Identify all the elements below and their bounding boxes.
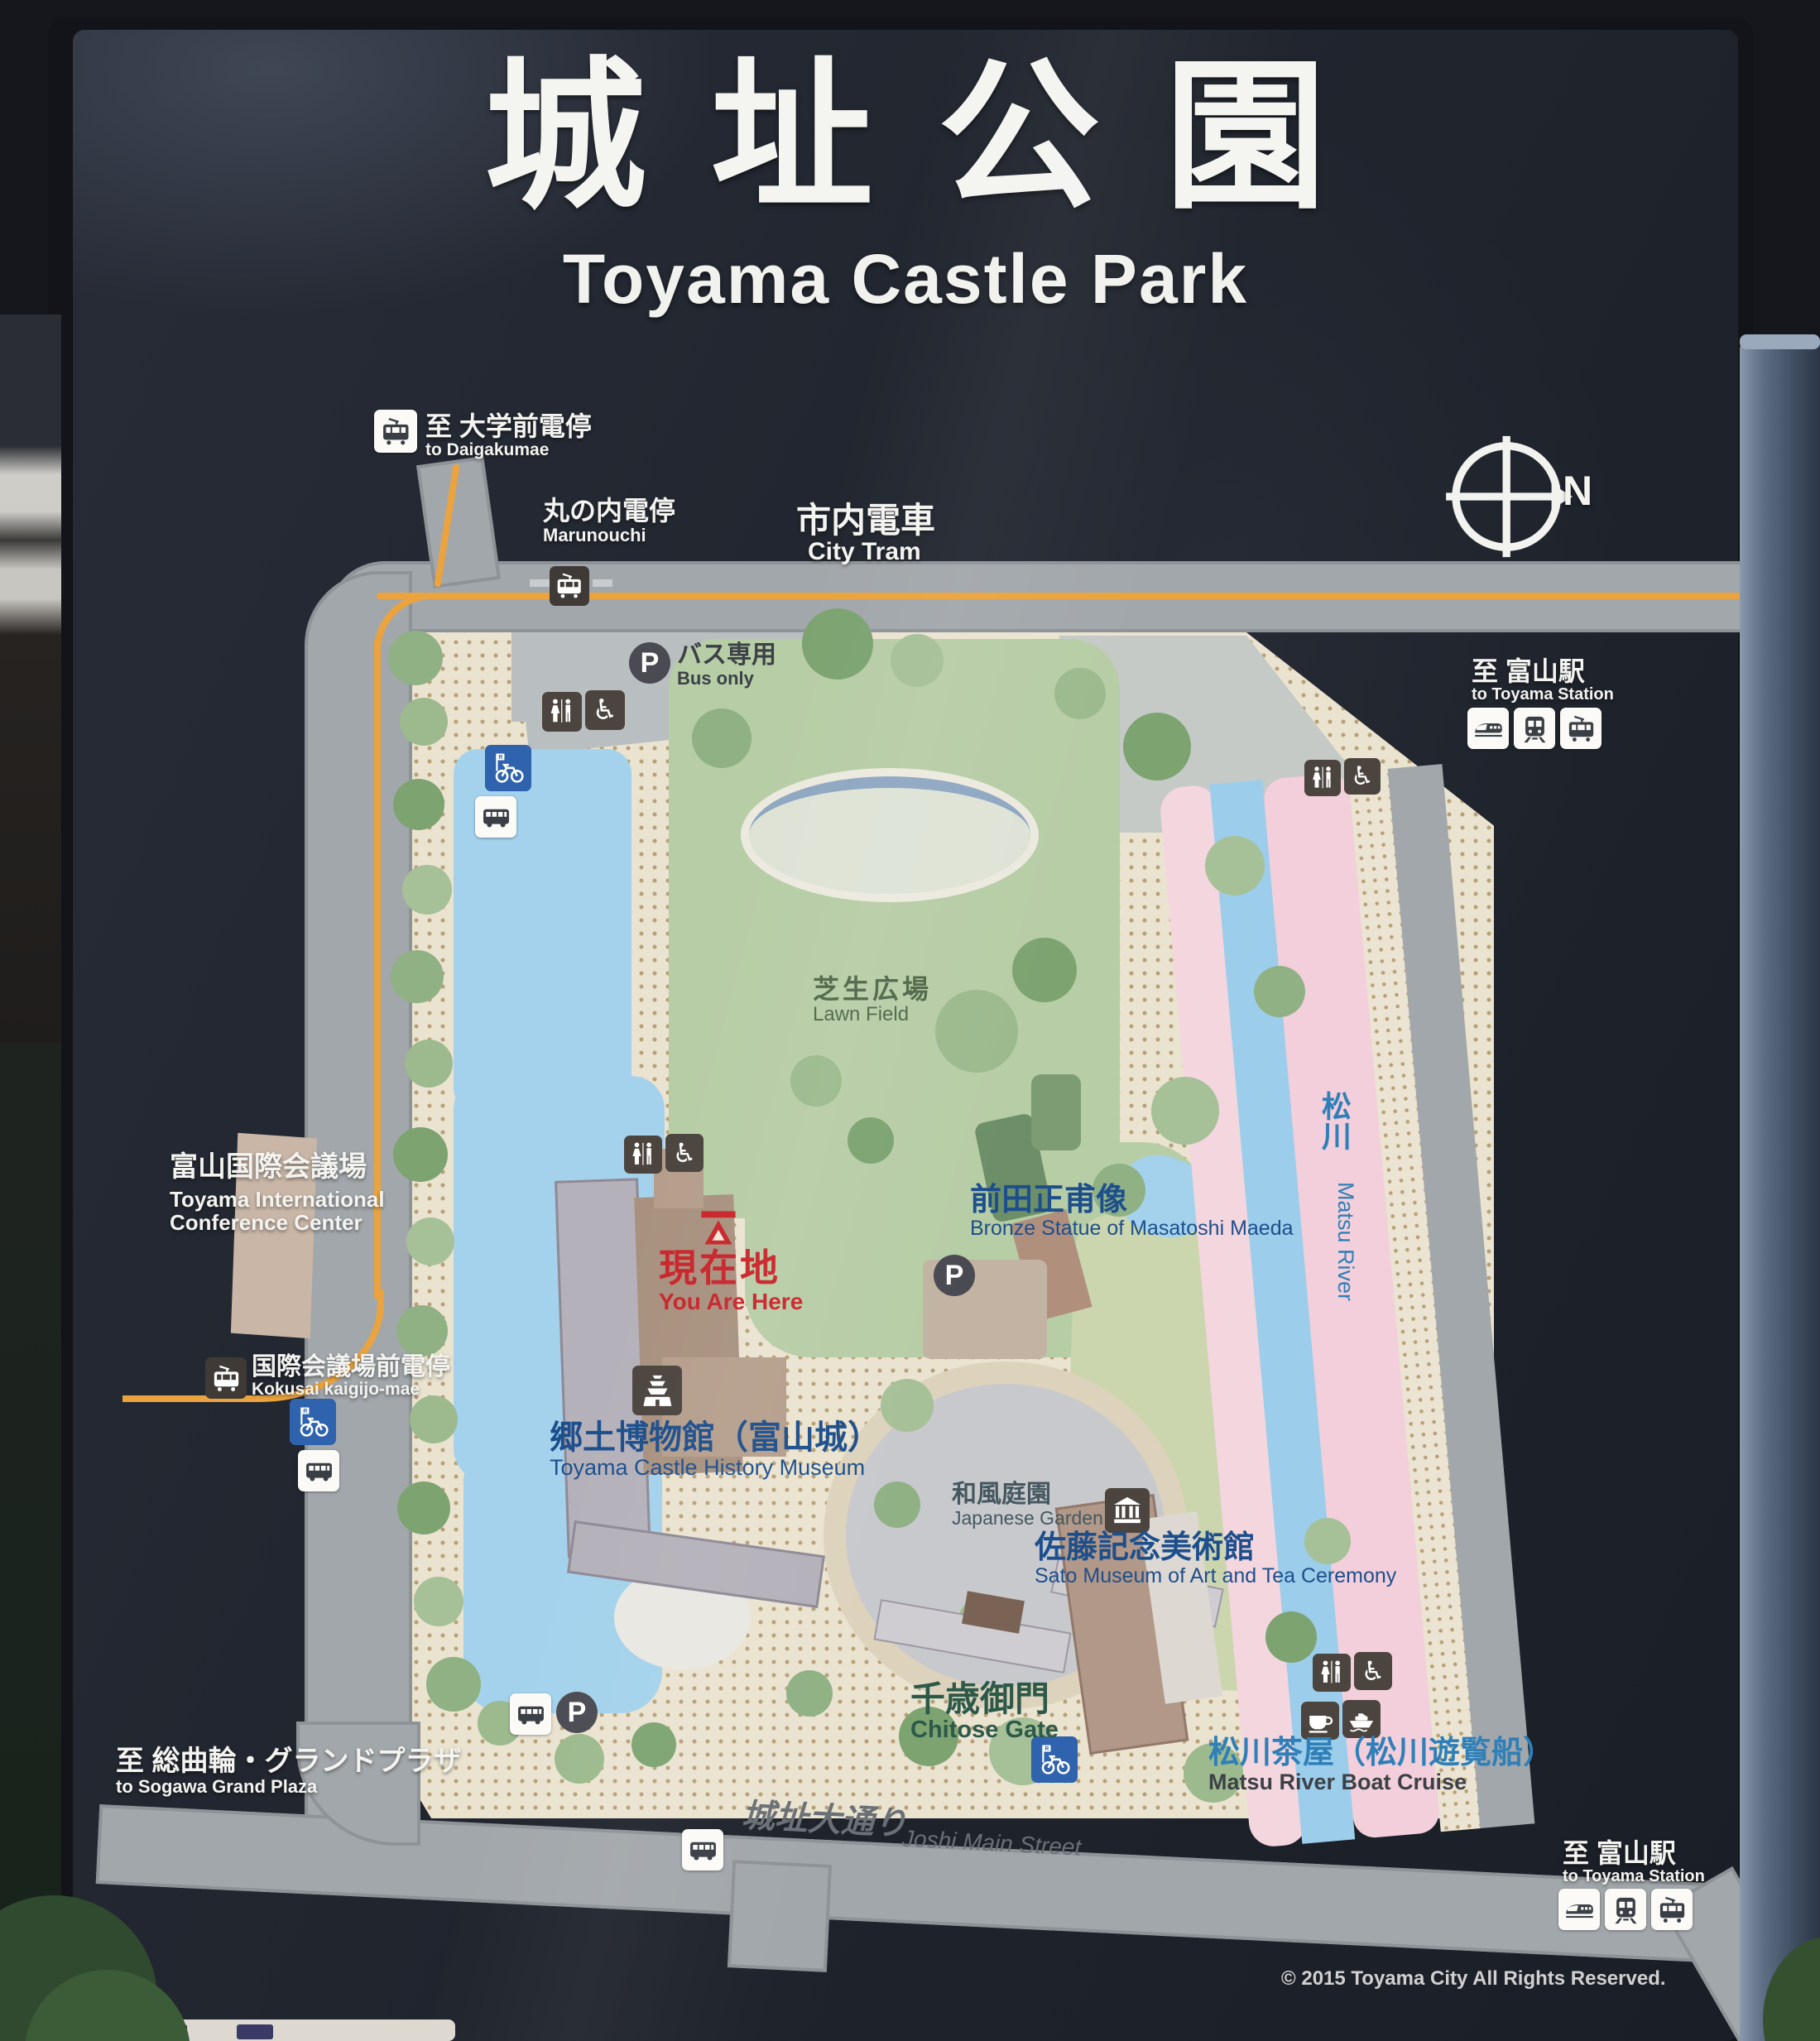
city-tram-jp: 市内電車 xyxy=(796,502,935,539)
bicycle-rental-icon-nw: R xyxy=(485,745,531,791)
label-to-toyama-station-bottom: 至 富山駅 to Toyama Station xyxy=(1563,1839,1705,1885)
label-sogawa: 至 総曲輪・グランドプラザ to Sogawa Grand Plaza xyxy=(116,1746,461,1796)
tree xyxy=(426,1657,481,1712)
tree xyxy=(891,634,944,687)
to-toyama-bottom-en: to Toyama Station xyxy=(1563,1868,1705,1886)
label-city-tram: 市内電車 City Tram xyxy=(796,502,935,566)
svg-text:R: R xyxy=(499,755,503,761)
conference-center-en1: Toyama International xyxy=(170,1188,385,1211)
compass-icon xyxy=(1442,426,1582,567)
lawn-field-en: Lawn Field xyxy=(813,1004,932,1025)
bus-only-jp: バス専用 xyxy=(677,642,776,669)
maeda-statue-en: Bronze Statue of Masatoshi Maeda xyxy=(970,1217,1294,1240)
you-are-here-marker xyxy=(697,1207,740,1248)
tree xyxy=(402,865,452,915)
kokusai-en: Kokusai kaigijo-mae xyxy=(252,1381,450,1400)
castle-icon xyxy=(632,1366,682,1415)
to-toyama-top-en: to Toyama Station xyxy=(1472,686,1614,704)
label-boat-cruise: 松川茶屋（松川遊覧船） Matsu River Boat Cruise xyxy=(1208,1736,1554,1794)
to-daigakumae-jp: 至 大学前電停 xyxy=(425,412,592,441)
label-you-are-here: 現在地 You Are Here xyxy=(659,1248,803,1314)
label-sato-museum: 佐藤記念美術館 Sato Museum of Art and Tea Cerem… xyxy=(1035,1531,1396,1587)
background-building xyxy=(0,315,61,1043)
tree xyxy=(393,1127,448,1182)
boat-cruise-jp: 松川茶屋（松川遊覧船） xyxy=(1208,1736,1554,1770)
svg-text:R: R xyxy=(1045,1746,1049,1752)
train-icon xyxy=(1514,708,1555,749)
conference-center-jp: 富山国際会議場 xyxy=(170,1152,385,1183)
tree xyxy=(848,1117,894,1164)
tree xyxy=(1265,1611,1317,1663)
label-conference-center: 富山国際会議場 Toyama International Conference … xyxy=(170,1152,385,1234)
you-are-here-jp: 現在地 xyxy=(659,1248,803,1289)
wheelchair-icon-castle: ♿ xyxy=(665,1134,704,1172)
tree xyxy=(631,1722,676,1767)
road-south-stub xyxy=(728,1860,832,1972)
sogawa-jp: 至 総曲輪・グランドプラザ xyxy=(116,1746,461,1777)
label-matsu-river-en: Matsu River xyxy=(1333,1182,1357,1301)
tree xyxy=(414,1577,463,1626)
tram-stop-icon-kokusai xyxy=(205,1357,247,1399)
label-to-toyama-station-top: 至 富山駅 to Toyama Station xyxy=(1472,657,1614,704)
city-tram-en: City Tram xyxy=(796,539,935,565)
bus-icon-nw xyxy=(475,796,516,838)
bus-icon-south xyxy=(510,1693,551,1735)
japanese-garden-jp: 和風庭園 xyxy=(952,1482,1103,1508)
wheelchair-icon-ne: ♿ xyxy=(1344,758,1381,795)
parking-icon-bus: P xyxy=(629,642,670,684)
tram-platform-east xyxy=(593,579,612,587)
tree xyxy=(874,1482,920,1528)
tree xyxy=(405,1040,453,1088)
parking-icon-south: P xyxy=(556,1692,598,1733)
label-to-daigakumae: 至 大学前電停 to Daigakumae xyxy=(425,412,592,459)
tree xyxy=(391,950,444,1003)
boat-icon xyxy=(1342,1700,1381,1738)
conference-center-en2: Conference Center xyxy=(170,1211,385,1234)
history-museum-en: Toyama Castle History Museum xyxy=(550,1456,881,1480)
tree xyxy=(388,631,443,685)
marunouchi-jp: 丸の内電停 xyxy=(543,497,675,526)
bus-icon-west xyxy=(298,1450,339,1491)
label-kokusai-kaigijo-mae: 国際会議場前電停 Kokusai kaigijo-mae xyxy=(252,1354,450,1400)
tree xyxy=(397,1482,450,1534)
japanese-garden-en: Japanese Garden xyxy=(952,1508,1103,1529)
label-maeda-statue: 前田正甫像 Bronze Statue of Masatoshi Maeda xyxy=(970,1184,1294,1240)
signpost-pole xyxy=(1740,341,1820,2041)
toilet-icon-se xyxy=(1313,1654,1351,1692)
tree xyxy=(555,1734,604,1784)
label-history-museum: 郷土博物館（富山城） Toyama Castle History Museum xyxy=(550,1420,881,1480)
shinkansen-icon-bottom xyxy=(1558,1889,1600,1930)
photographed-park-sign: 城址公園 Toyama Castle Park N xyxy=(0,0,1820,2041)
tree xyxy=(396,1305,448,1357)
tree xyxy=(790,1055,842,1107)
label-japanese-garden: 和風庭園 Japanese Garden xyxy=(952,1482,1103,1529)
sign-title-english: Toyama Castle Park xyxy=(73,242,1738,317)
tree xyxy=(692,708,752,768)
tree xyxy=(1205,836,1265,896)
copyright-text: © 2015 Toyama City All Rights Reserved. xyxy=(1281,1968,1666,1990)
lower-sign-glyph-2 xyxy=(237,2024,273,2039)
museum-icon xyxy=(1105,1488,1150,1533)
label-marunouchi: 丸の内電停 Marunouchi xyxy=(543,497,675,545)
tree xyxy=(786,1670,833,1717)
tram-icon xyxy=(374,410,417,453)
train-icon-bottom xyxy=(1605,1889,1646,1930)
to-toyama-bottom-jp: 至 富山駅 xyxy=(1563,1839,1705,1868)
label-chitose-gate: 千歳御門 Chitose Gate xyxy=(910,1680,1059,1744)
tram-icon-station-bottom xyxy=(1651,1889,1693,1930)
tram-stop-icon-marunouchi xyxy=(550,566,589,606)
sato-museum-jp: 佐藤記念美術館 xyxy=(1035,1531,1396,1565)
tree xyxy=(1012,938,1077,1002)
chitose-gate-en: Chitose Gate xyxy=(910,1717,1059,1743)
tram-icon-station-top xyxy=(1560,708,1602,749)
tree xyxy=(393,779,444,830)
tree xyxy=(881,1379,934,1432)
boat-cruise-en: Matsu River Boat Cruise xyxy=(1208,1770,1554,1794)
lawn-field-jp: 芝生広場 xyxy=(813,975,932,1004)
label-matsu-river-jp: 松川 xyxy=(1318,1091,1350,1150)
tree xyxy=(1151,1077,1219,1145)
label-bus-only: バス専用 Bus only xyxy=(677,642,776,689)
sign-title-japanese: 城址公園 xyxy=(73,50,1738,225)
tree xyxy=(410,1395,458,1443)
kokusai-jp: 国際会議場前電停 xyxy=(252,1354,450,1381)
bicycle-rental-icon-west: R xyxy=(290,1399,336,1445)
maeda-statue-jp: 前田正甫像 xyxy=(970,1184,1294,1217)
toilet-icon-nw xyxy=(542,692,582,732)
shinkansen-icon xyxy=(1467,708,1509,749)
svg-text:R: R xyxy=(304,1409,308,1414)
tree xyxy=(935,990,1018,1073)
to-daigakumae-en: to Daigakumae xyxy=(425,441,592,460)
toilet-icon-castle xyxy=(624,1136,662,1174)
bus-only-en: Bus only xyxy=(677,669,776,689)
tram-platform-west xyxy=(530,579,550,587)
label-lawn-field: 芝生広場 Lawn Field xyxy=(813,975,932,1025)
wheelchair-icon-se: ♿ xyxy=(1354,1652,1392,1690)
sogawa-en: to Sogawa Grand Plaza xyxy=(116,1777,461,1797)
tree xyxy=(400,698,448,746)
background-left-edge xyxy=(0,1043,61,2041)
you-are-here-en: You Are Here xyxy=(659,1289,803,1314)
wheelchair-icon-nw: ♿ xyxy=(585,690,625,730)
marunouchi-en: Marunouchi xyxy=(543,526,675,545)
tree xyxy=(802,608,873,680)
tree xyxy=(406,1217,454,1265)
statue-hedge-2 xyxy=(1031,1074,1081,1150)
toilet-icon-ne xyxy=(1304,760,1341,796)
chitose-gate-jp: 千歳御門 xyxy=(910,1680,1059,1717)
oval-garden xyxy=(749,776,1030,894)
tree xyxy=(1054,668,1106,719)
parking-icon-center: P xyxy=(934,1255,975,1296)
to-toyama-top-jp: 至 富山駅 xyxy=(1472,657,1614,686)
tree xyxy=(1123,713,1191,780)
sato-museum-en: Sato Museum of Art and Tea Ceremony xyxy=(1035,1565,1396,1587)
bus-icon-road xyxy=(682,1829,723,1871)
teahouse-icon xyxy=(1301,1702,1339,1740)
compass-north-label: N xyxy=(1563,468,1592,513)
history-museum-jp: 郷土博物館（富山城） xyxy=(550,1420,881,1456)
signpost-pole-cap xyxy=(1740,334,1820,349)
tree xyxy=(1254,966,1305,1017)
